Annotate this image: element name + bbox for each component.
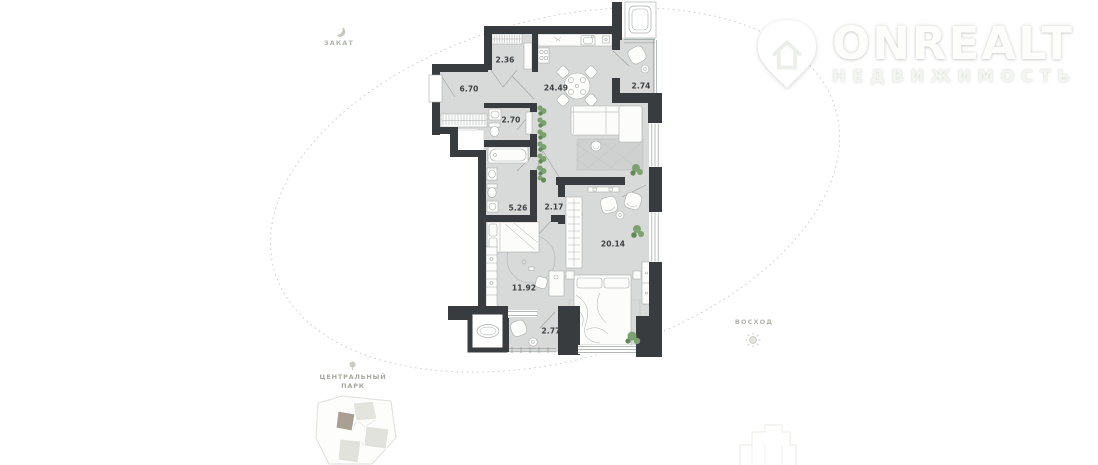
side-table (616, 211, 624, 219)
tree-icon (350, 362, 356, 371)
loggia-table (529, 338, 537, 346)
watermark-logo: ONREALT НЕДВИЖИМОСТЬ (756, 18, 1077, 90)
watermark-brand: ONREALT (832, 22, 1077, 66)
room-area-label-wc: 2.70 (502, 116, 521, 125)
bathtub (488, 147, 528, 163)
tv-console (588, 187, 619, 192)
park-label-line2: ПАРК (320, 382, 387, 391)
room-area-label-corridor: 2.17 (545, 203, 564, 212)
watermark-text: ONREALT НЕДВИЖИМОСТЬ (832, 22, 1077, 86)
washing-machine (487, 201, 498, 212)
wc-sink (489, 109, 501, 120)
bath-sink (487, 168, 497, 180)
park-label: ЦЕНТРАЛЬНЫЙ ПАРК (320, 373, 387, 391)
room-area-label-bathroom: 5.26 (509, 204, 528, 213)
room-area-label-bedroom-master: 20.14 (601, 240, 625, 249)
nightstand (566, 271, 574, 279)
sun-icon (746, 333, 761, 348)
loggia-table (641, 65, 649, 73)
sunset-label: ЗАКАТ (324, 39, 354, 47)
hallway-closet (441, 114, 487, 127)
bookshelf (486, 247, 497, 307)
nightstand (633, 271, 641, 279)
stove (538, 48, 549, 63)
building-outline (740, 425, 796, 465)
highlighted-building (336, 411, 355, 431)
floor-plan (429, 2, 662, 357)
neighbor-room (625, 2, 656, 38)
neighbor-loggia (470, 312, 505, 350)
sunrise-label: ВОСХОД (735, 318, 773, 326)
room-area-label-hallway: 6.70 (460, 85, 479, 94)
moon-icon (337, 27, 346, 37)
page: 2.36 6.70 24.49 2.74 2.70 5.26 2.17 20.1… (0, 0, 1098, 465)
watermark-subtitle: НЕДВИЖИМОСТЬ (832, 67, 1077, 86)
logo-pin-icon (756, 18, 818, 90)
wc-toilet (489, 123, 500, 137)
room-area-label-wardrobe: 2.36 (496, 56, 515, 65)
room-area-label-loggia-lower: 2.77 (542, 327, 561, 336)
room-area-label-loggia-upper: 2.74 (632, 82, 651, 91)
bath-toilet (487, 184, 497, 198)
pouf (591, 141, 601, 151)
rug-item (529, 267, 534, 271)
room-area-label-bedroom-second: 11.92 (512, 284, 536, 293)
bed-master (574, 275, 631, 345)
park-label-line1: ЦЕНТРАЛЬНЫЙ (320, 373, 387, 382)
wc-door-leaf (526, 112, 532, 134)
park-map (316, 396, 396, 464)
open-wardrobe (566, 197, 582, 268)
kitchen-counter (538, 34, 612, 46)
room-area-label-kitchen-living: 24.49 (544, 84, 568, 93)
